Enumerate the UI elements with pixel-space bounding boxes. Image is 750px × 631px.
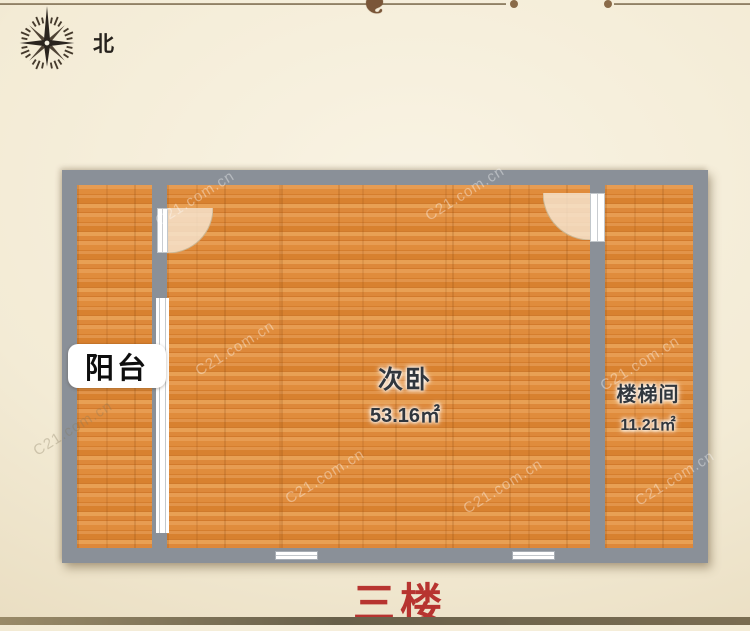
floral-ornament-icon: ❦ (360, 0, 390, 20)
bottom-border (0, 617, 750, 625)
north-label: 北 (93, 28, 114, 58)
door-leaf (157, 208, 168, 253)
top-rule-right (614, 3, 750, 5)
room-label-balcony: 阳台 (68, 344, 166, 388)
door-swing-icon (168, 208, 213, 253)
room-name: 楼梯间 (598, 378, 698, 407)
room-name: 次卧 (305, 360, 505, 396)
room-area: 11.21㎡ (598, 411, 698, 435)
compass-icon (10, 6, 84, 80)
room-label-stairwell: 楼梯间 11.21㎡ (598, 378, 698, 435)
top-rule-left (0, 3, 506, 5)
door-swing-icon (543, 193, 590, 240)
rule-dot-left (510, 0, 518, 8)
rule-dot-right (604, 0, 612, 8)
room-stairwell-floor (605, 185, 693, 548)
door-leaf (590, 193, 605, 242)
floor-plan-canvas: 阳台 次卧 53.16㎡ 楼梯间 11.21㎡ (62, 170, 708, 563)
window-strip (512, 551, 555, 560)
window-strip (156, 298, 169, 533)
room-label-bedroom: 次卧 53.16㎡ (305, 360, 505, 428)
room-area: 53.16㎡ (305, 399, 505, 428)
window-strip (275, 551, 318, 560)
